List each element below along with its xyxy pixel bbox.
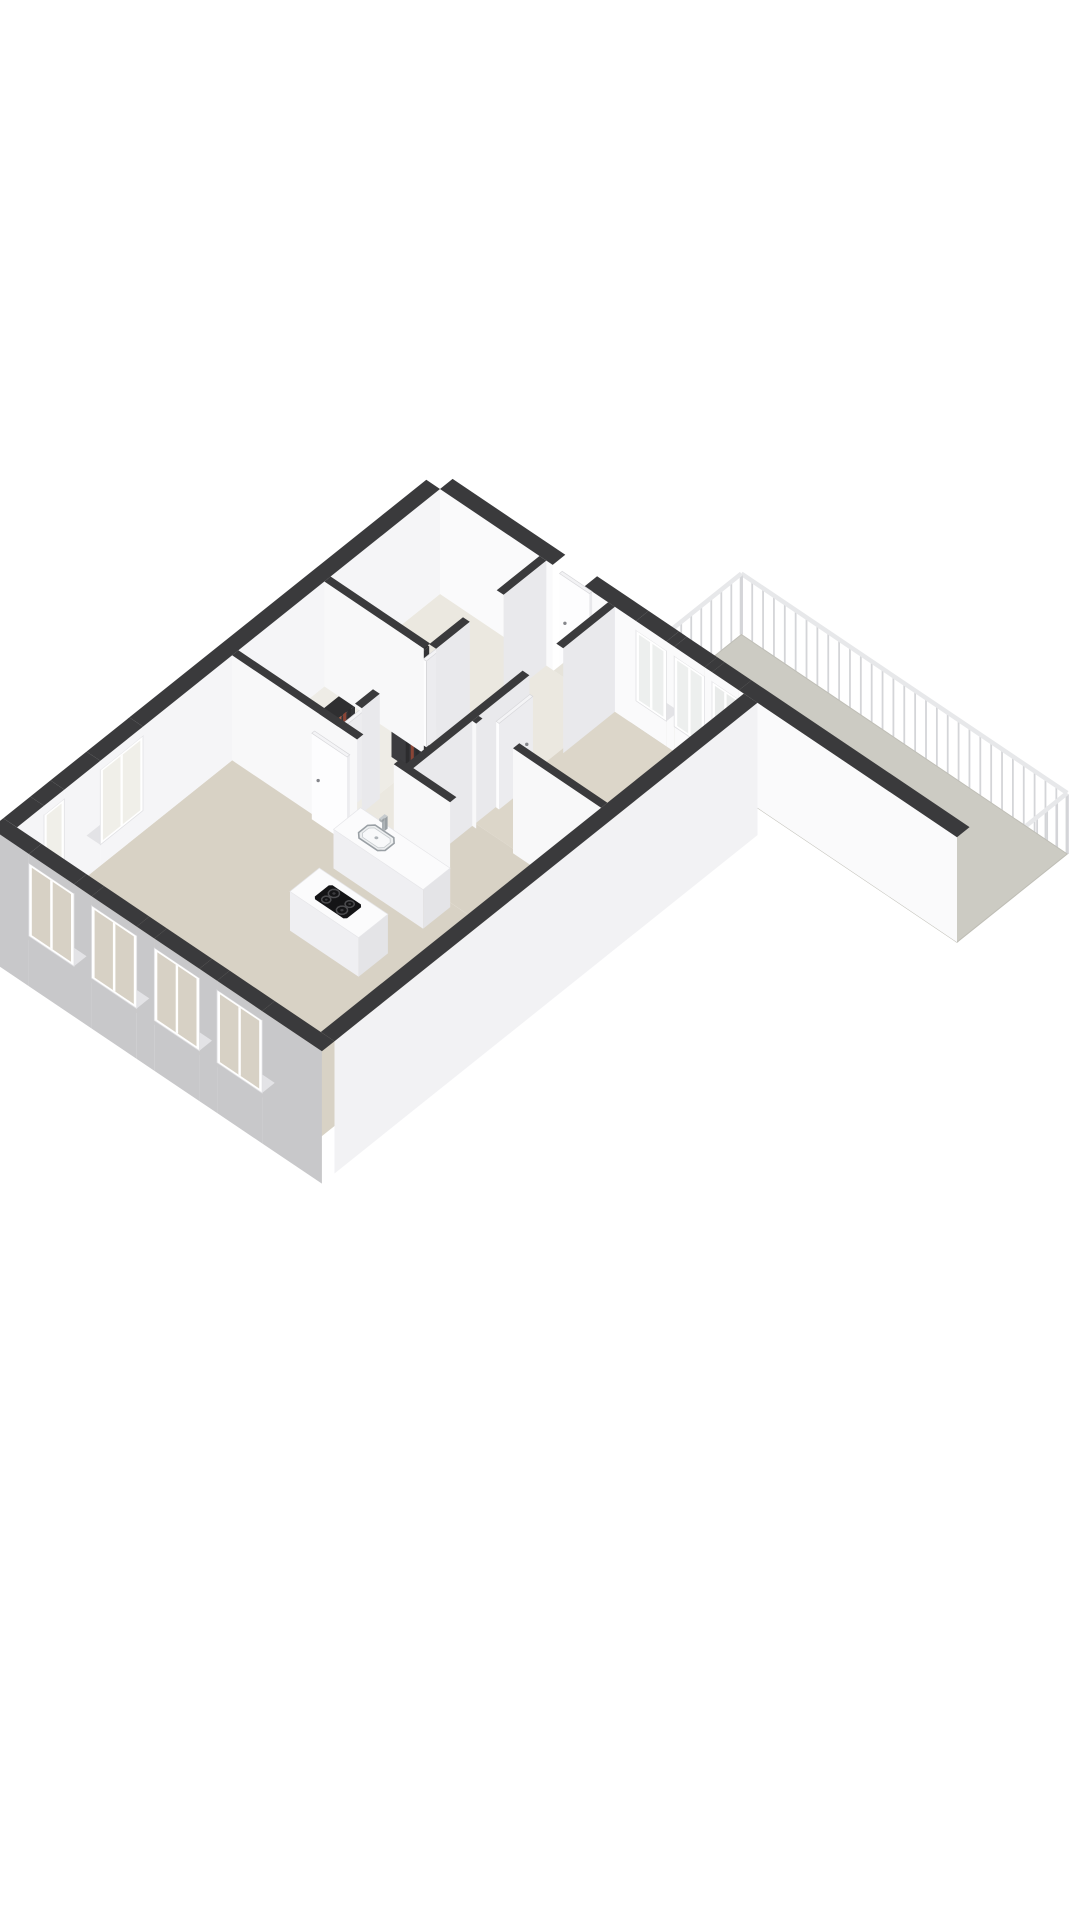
faucet	[382, 814, 388, 831]
floorplan-3d-render	[0, 0, 1080, 1920]
floorplan-3d-page	[0, 0, 1080, 1920]
